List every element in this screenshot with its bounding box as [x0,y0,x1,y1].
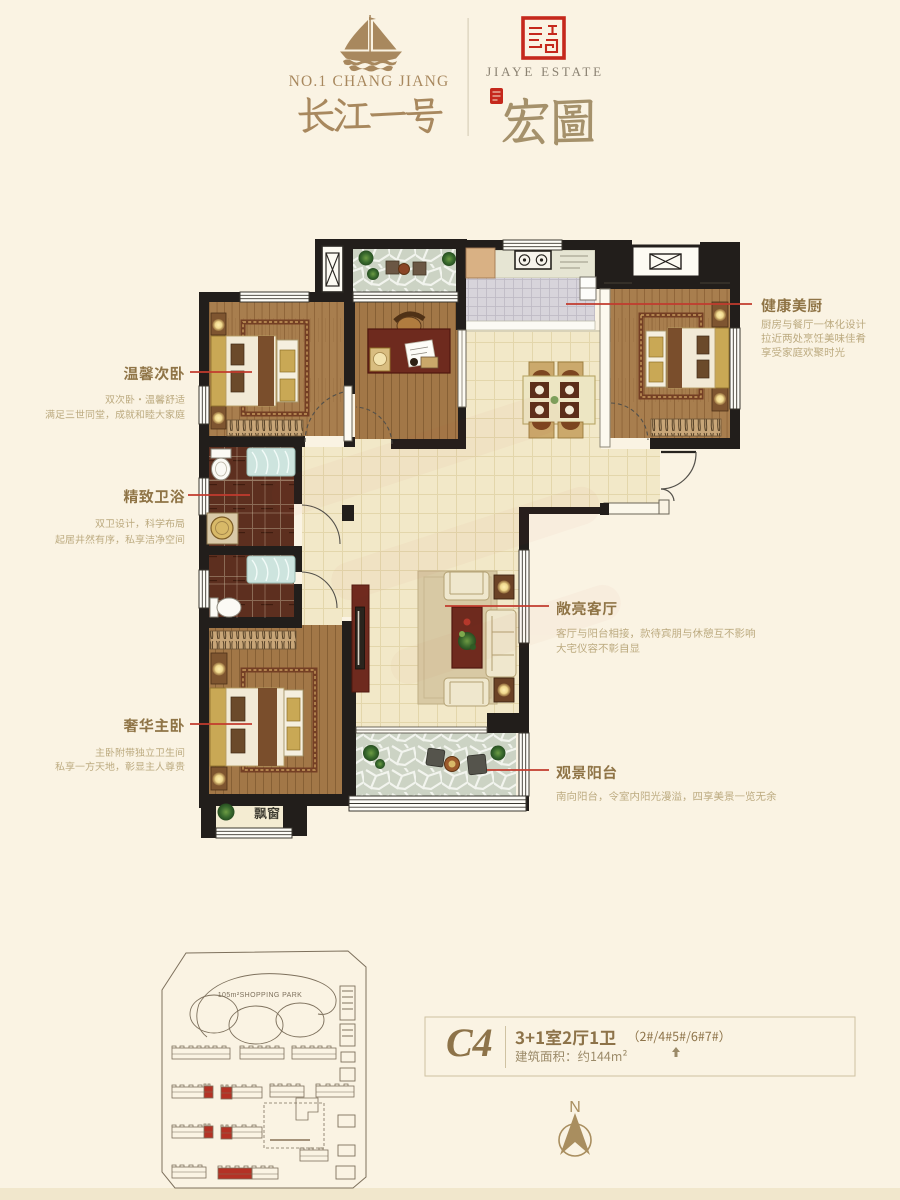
svg-text:105m²SHOPPING PARK: 105m²SHOPPING PARK [218,992,302,999]
svg-text:C4: C4 [446,1020,493,1065]
svg-text:NO.1 CHANG JIANG: NO.1 CHANG JIANG [289,73,450,90]
svg-text:JIAYE ESTATE: JIAYE ESTATE [486,64,604,79]
